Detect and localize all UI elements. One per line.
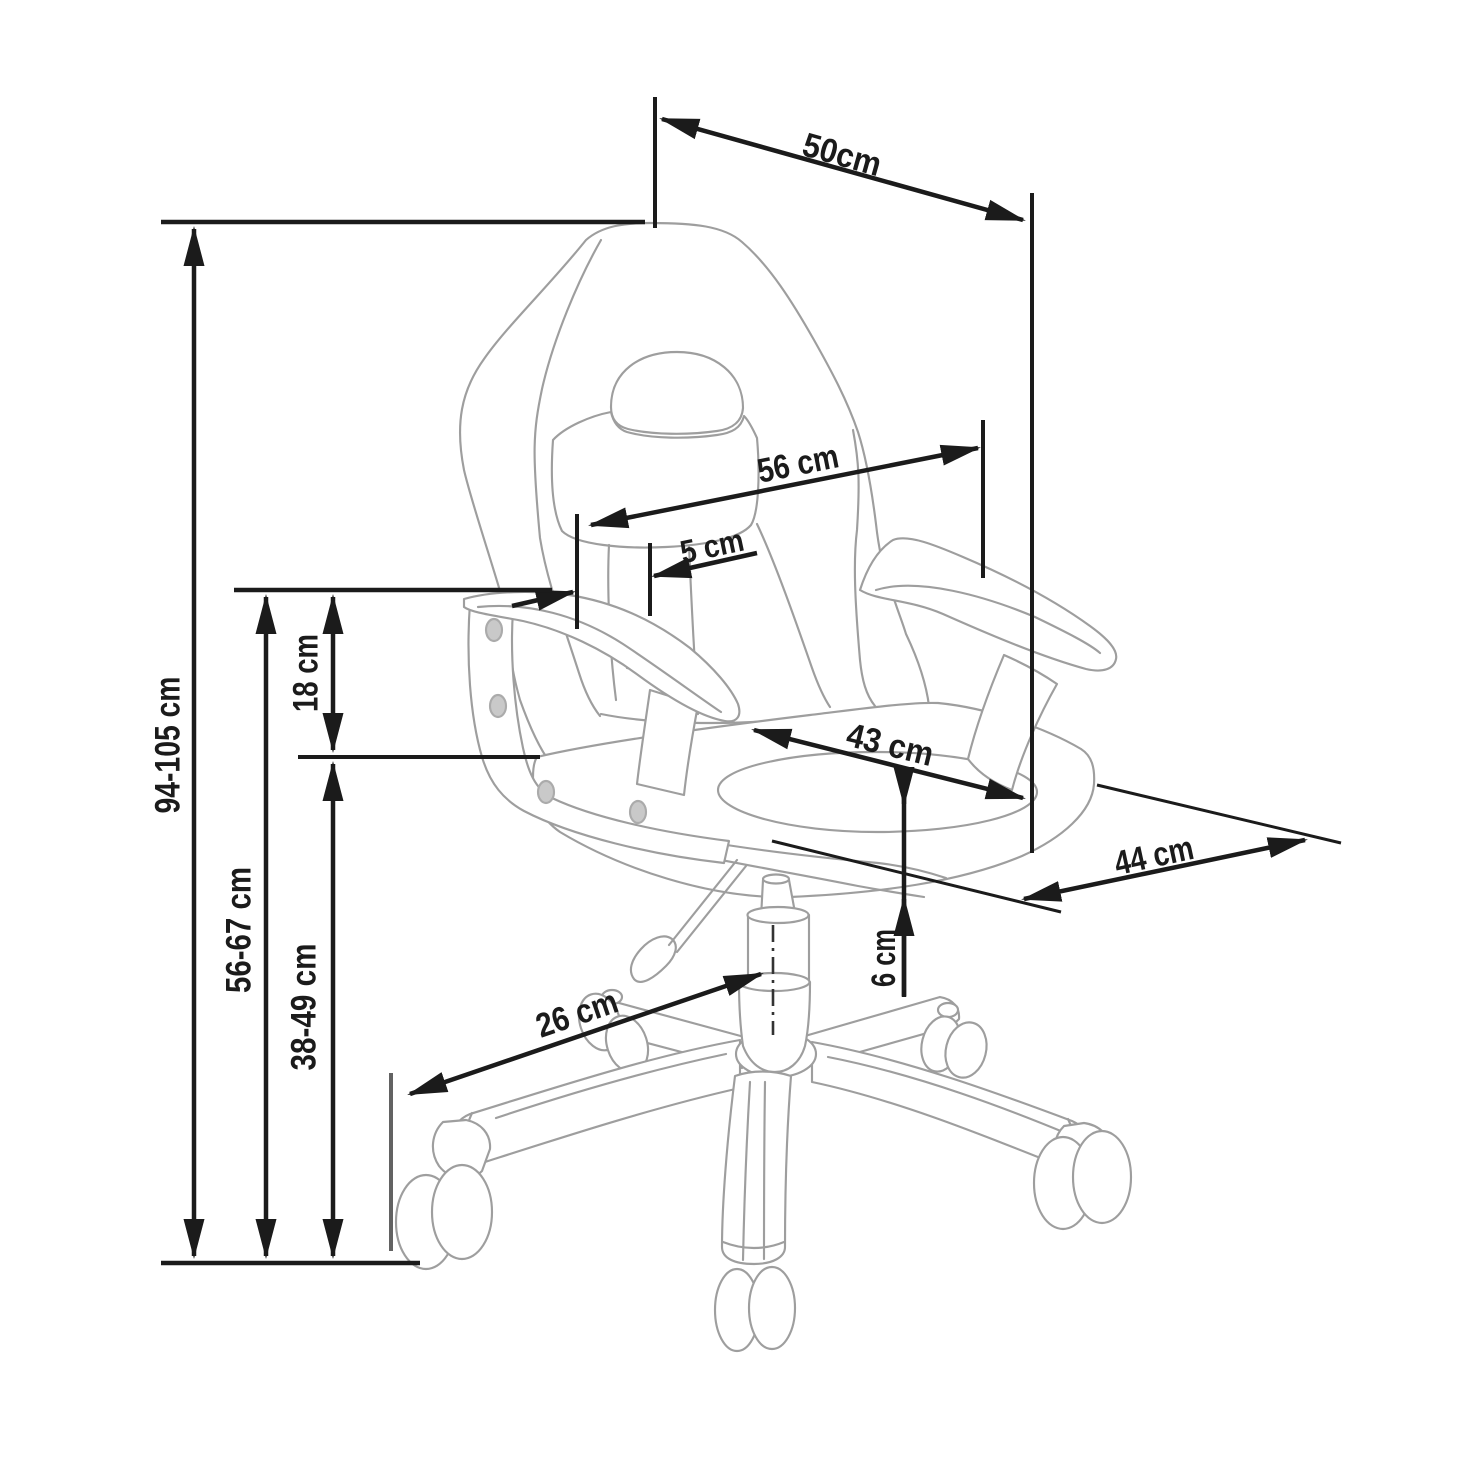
svg-text:18 cm: 18 cm [287, 634, 326, 712]
svg-text:6 cm: 6 cm [865, 929, 903, 987]
svg-text:94-105 cm: 94-105 cm [149, 677, 188, 814]
svg-text:38-49 cm: 38-49 cm [285, 944, 324, 1071]
svg-text:50cm: 50cm [798, 126, 885, 184]
svg-text:44 cm: 44 cm [1111, 829, 1197, 883]
svg-text:56-67 cm: 56-67 cm [220, 867, 259, 993]
